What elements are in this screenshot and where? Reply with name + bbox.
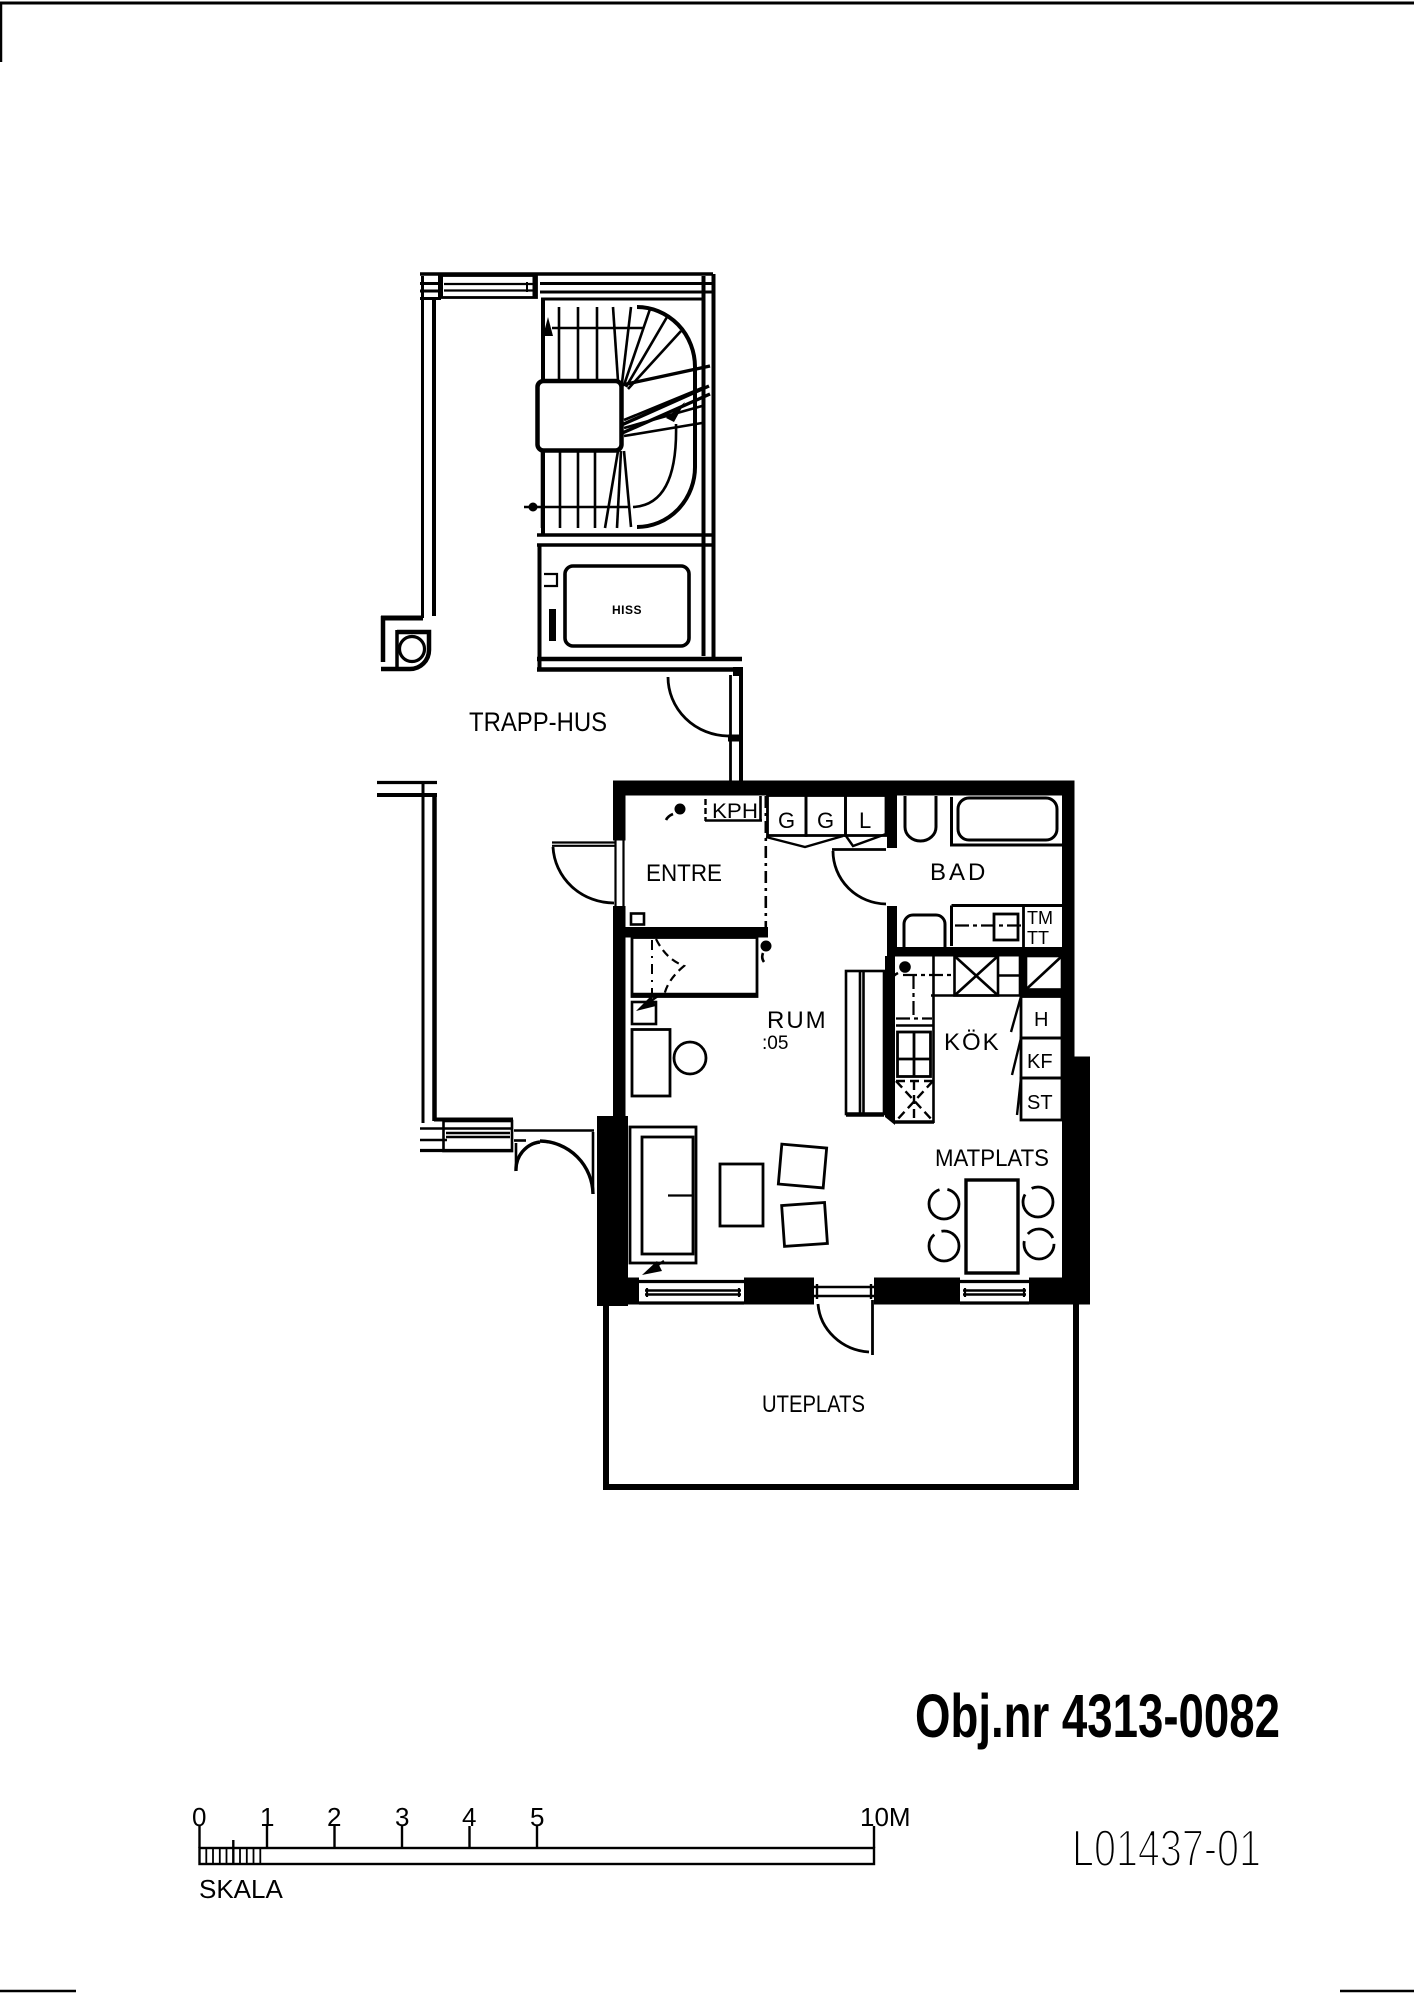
svg-text:TT: TT <box>1027 928 1049 948</box>
svg-text:2: 2 <box>327 1802 341 1832</box>
svg-text:5: 5 <box>530 1802 544 1832</box>
svg-text:KÖK: KÖK <box>944 1029 1001 1056</box>
svg-text:MATPLATS: MATPLATS <box>935 1145 1049 1172</box>
svg-text:10M: 10M <box>860 1802 911 1832</box>
svg-text:TM: TM <box>1027 908 1053 928</box>
svg-text:SKALA: SKALA <box>199 1874 283 1904</box>
svg-text:BAD: BAD <box>930 859 988 886</box>
svg-text:TRAPP-HUS: TRAPP-HUS <box>469 707 607 737</box>
svg-text:KF: KF <box>1027 1051 1053 1073</box>
svg-text:3: 3 <box>395 1802 409 1832</box>
svg-text:L: L <box>859 808 871 833</box>
svg-text:4: 4 <box>462 1802 476 1832</box>
svg-text:KPH: KPH <box>712 800 758 823</box>
svg-text:1: 1 <box>260 1802 274 1832</box>
svg-text:L01437-01: L01437-01 <box>1072 1820 1261 1878</box>
svg-text:HISS: HISS <box>612 603 642 617</box>
svg-text:H: H <box>1034 1009 1048 1031</box>
svg-text:G: G <box>817 808 834 833</box>
svg-text:UTEPLATS: UTEPLATS <box>762 1391 865 1418</box>
svg-text::05: :05 <box>762 1033 788 1054</box>
svg-text:Obj.nr 4313-0082: Obj.nr 4313-0082 <box>915 1682 1280 1750</box>
svg-text:ST: ST <box>1027 1092 1053 1114</box>
svg-text:0: 0 <box>192 1802 206 1832</box>
svg-text:G: G <box>778 808 795 833</box>
svg-text:RUM: RUM <box>767 1007 828 1034</box>
svg-text:ENTRE: ENTRE <box>646 860 722 887</box>
